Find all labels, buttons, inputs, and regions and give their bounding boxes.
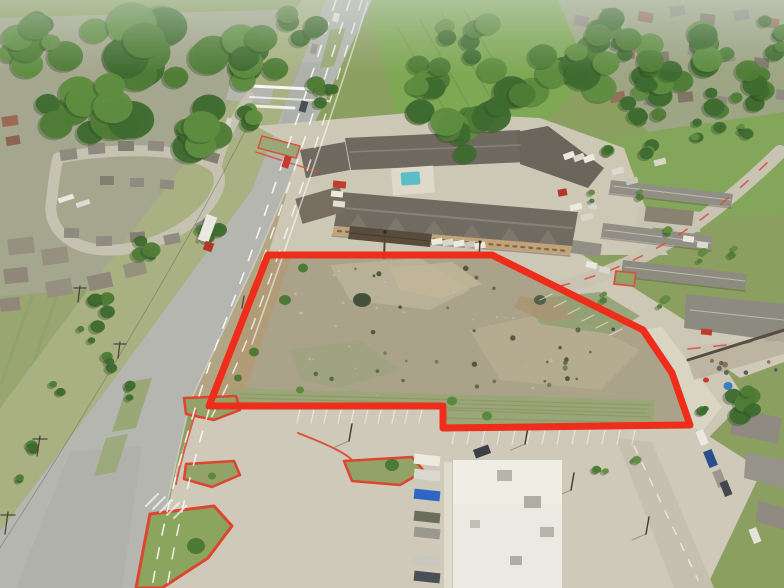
- aerial-photo-stage: [0, 0, 784, 588]
- aerial-photo: [0, 0, 784, 588]
- haze-overlay: [0, 0, 784, 74]
